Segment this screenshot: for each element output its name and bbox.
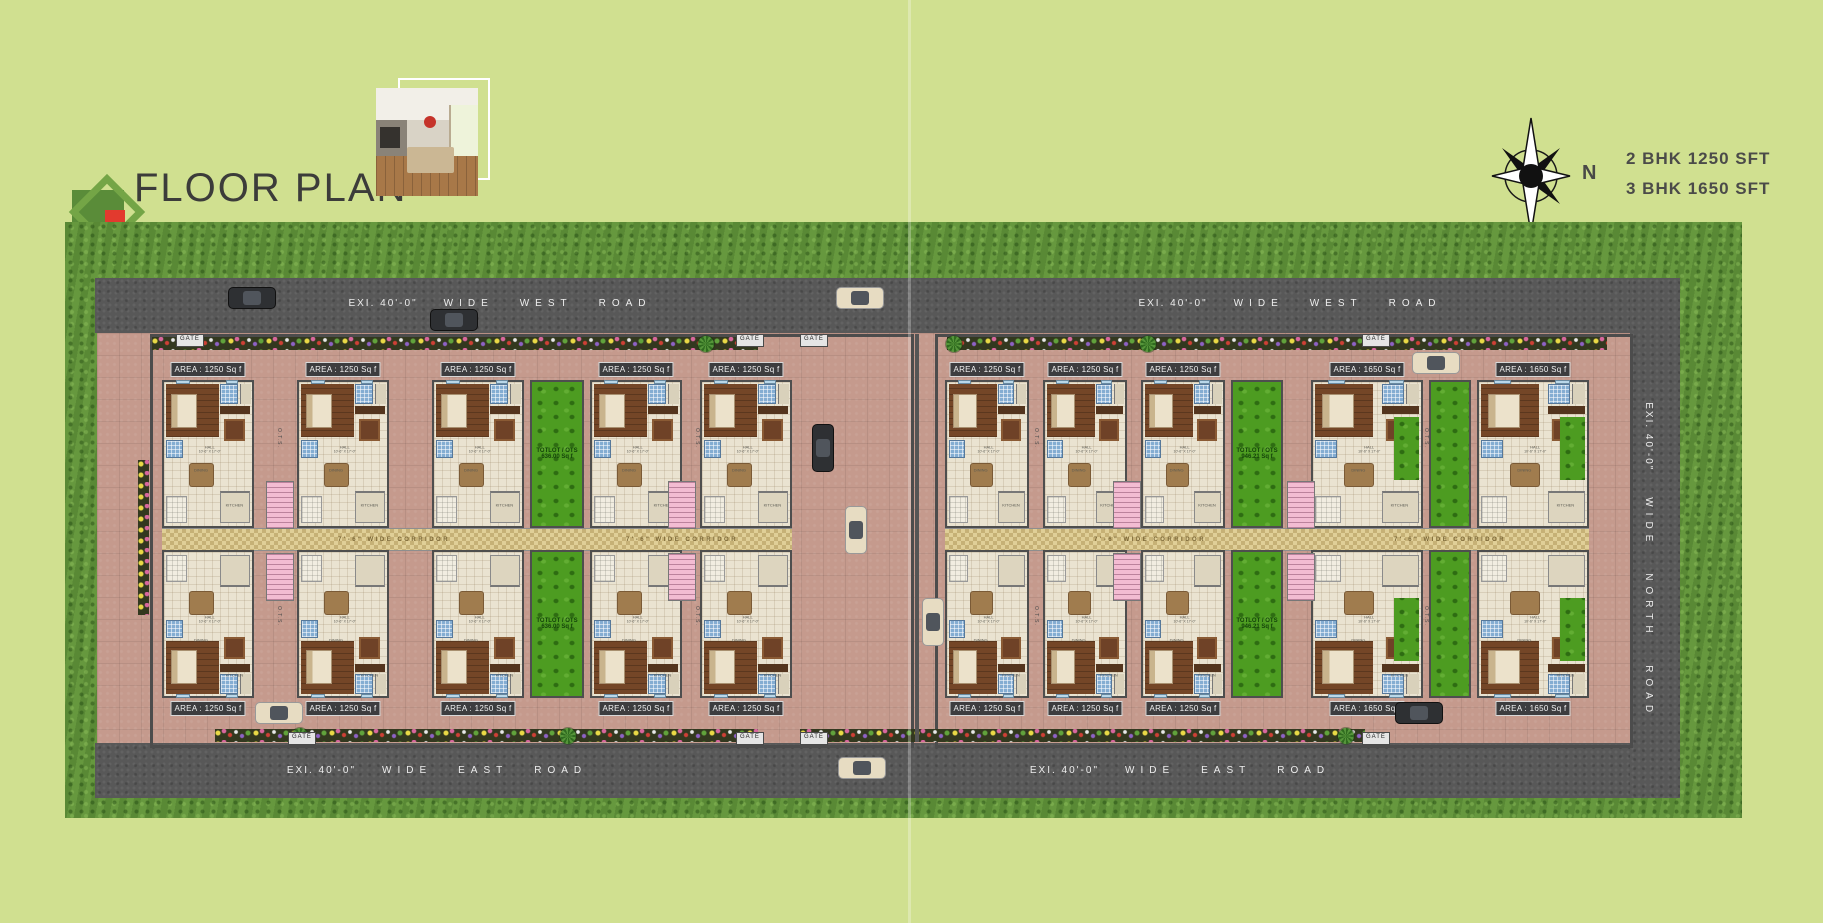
room-label: HALL10'-6" X 17'-0" <box>199 445 221 454</box>
road-label-segment: NORTH <box>1643 573 1654 638</box>
room-label-text: 10'-6" X 17'-0" <box>1076 620 1098 624</box>
room-label: HALL10'-6" X 17'-0" <box>1358 615 1380 624</box>
room-label-text: HALL <box>633 614 643 619</box>
unit-cell-bhk2: HALL10'-6" X 17'-0"DININGKITCHEN <box>700 380 792 528</box>
window <box>1389 694 1404 698</box>
totlot-patch: TOTLOT / OTS946.21 Sq f <box>1231 380 1283 528</box>
floor-plan-page: { "page": {"background": "#d0e090"}, "he… <box>0 0 1823 923</box>
sofa <box>359 419 380 441</box>
sofa <box>224 637 245 659</box>
window <box>958 694 971 698</box>
sitout-area <box>1481 496 1507 523</box>
staircase <box>668 481 696 529</box>
window <box>1328 380 1345 384</box>
wardrobe <box>220 406 250 413</box>
bed <box>709 394 735 429</box>
totlot-patch <box>1429 550 1471 698</box>
bed <box>1488 650 1520 685</box>
totlot-label-line: 946.21 Sq f <box>1241 454 1272 460</box>
unit-cell-bhk2: HALL10'-6" X 17'-0"DININGKITCHEN <box>1141 550 1225 698</box>
room-label-text: HALL <box>743 614 753 619</box>
car-cream <box>836 287 884 309</box>
room-label: HALL10'-6" X 17'-0" <box>1076 615 1098 624</box>
room-label-text: HALL <box>1364 614 1374 619</box>
sitout-area <box>704 496 725 523</box>
bed <box>1322 394 1354 429</box>
staircase <box>1113 481 1141 529</box>
area-badge: AREA : 1250 Sq f <box>949 701 1024 716</box>
window <box>446 380 460 384</box>
road-label-segment: ROAD <box>1277 765 1330 776</box>
room-label-text: 10'-6" X 17'-0" <box>469 620 491 624</box>
sitout-area <box>594 555 615 582</box>
totlot-label-line: 946.21 Sq f <box>1241 624 1272 630</box>
area-badge: AREA : 1250 Sq f <box>1047 362 1122 377</box>
bed <box>599 394 625 429</box>
room-label: KITCHEN <box>496 673 514 678</box>
toilet-area <box>166 440 184 457</box>
sitout-area <box>1047 496 1066 523</box>
photo-tv <box>380 127 400 149</box>
toilet-area <box>301 440 319 457</box>
toilet-area <box>1481 620 1503 637</box>
room-label-text: 10'-6" X 17'-0" <box>1358 620 1380 624</box>
palm-tree-icon <box>1338 728 1354 744</box>
wardrobe <box>1382 406 1419 413</box>
room-label: DINING <box>464 469 478 474</box>
kitchen-area <box>355 555 385 587</box>
photo-lamp <box>424 116 436 128</box>
toilet-area <box>998 384 1014 404</box>
room-label: DINING <box>974 639 988 644</box>
room-label-text: 10'-6" X 17'-0" <box>627 620 649 624</box>
sofa <box>1099 419 1118 441</box>
room-label-text: HALL <box>205 614 215 619</box>
sitout-area <box>301 496 322 523</box>
dress-area <box>375 384 386 404</box>
toilet-area <box>1145 620 1161 637</box>
sitout-area <box>1145 555 1164 582</box>
toilet-area <box>758 384 776 404</box>
area-badge: AREA : 1250 Sq f <box>440 701 515 716</box>
gate-badge: GATE <box>176 334 204 347</box>
area-badge: AREA : 1250 Sq f <box>1145 362 1220 377</box>
toilet-area <box>1145 440 1161 457</box>
unit-cell-bhk2: HALL10'-6" X 17'-0"DININGKITCHEN <box>162 380 254 528</box>
unit-cell-bhk3: HALL10'-6" X 17'-0"DININGKITCHEN <box>1311 380 1423 528</box>
gate-badge: GATE <box>736 334 764 347</box>
wardrobe <box>1382 664 1419 671</box>
room-label-text: HALL <box>984 614 994 619</box>
interior-photo <box>376 88 478 196</box>
toilet-area <box>1481 440 1503 457</box>
window <box>496 694 508 698</box>
room-label: HALL10'-6" X 17'-0" <box>1174 445 1196 454</box>
window <box>1056 694 1069 698</box>
window <box>176 694 190 698</box>
window <box>226 380 238 384</box>
sofa <box>1001 419 1020 441</box>
room-label-text: HALL <box>743 444 753 449</box>
sofa <box>652 637 673 659</box>
window <box>311 694 325 698</box>
window <box>311 380 325 384</box>
sofa <box>494 419 515 441</box>
window <box>714 694 728 698</box>
room-label: KITCHEN <box>654 673 672 678</box>
unit-cell-bhk2: HALL10'-6" X 17'-0"DININGKITCHEN <box>162 550 254 698</box>
area-badge: AREA : 1250 Sq f <box>170 701 245 716</box>
road-label-segment: WIDE <box>1125 765 1175 776</box>
room-label: KITCHEN <box>1198 503 1216 508</box>
road-label-segment: WIDE <box>382 765 432 776</box>
room-label: DINING <box>194 639 208 644</box>
room-label-text: HALL <box>1082 614 1092 619</box>
dining-table <box>1069 592 1090 614</box>
toilet-area <box>355 384 373 404</box>
private-garden <box>1560 598 1585 661</box>
unit-cell-bhk2: HALL10'-6" X 17'-0"DININGKITCHEN <box>945 550 1029 698</box>
bed <box>306 650 332 685</box>
area-badge: AREA : 1650 Sq f <box>1329 362 1404 377</box>
toilet-area <box>1047 620 1063 637</box>
window <box>1056 380 1069 384</box>
ots-label: O.T.S. <box>276 606 282 626</box>
room-label: DINING <box>1351 469 1365 474</box>
flower-bed <box>947 337 1607 350</box>
sitout-area <box>166 496 187 523</box>
ots-label: O.T.S. <box>1033 428 1039 448</box>
palm-tree-icon <box>698 336 714 352</box>
road-label-segment: WIDE <box>1234 298 1284 309</box>
road-label-segment: ROAD <box>534 765 587 776</box>
road-label-segment: ROAD <box>1389 298 1442 309</box>
room-label: HALL10'-6" X 17'-0" <box>469 445 491 454</box>
road-label-segment: EXI. 40'-0" <box>1138 298 1207 309</box>
totlot-label-line: 636.00 Sq f <box>541 454 572 460</box>
car-cabin <box>1427 356 1445 370</box>
ots-label: O.T.S. <box>1423 606 1429 626</box>
gate-badge: GATE <box>288 732 316 745</box>
kitchen-area <box>998 555 1025 587</box>
kitchen-area <box>490 555 520 587</box>
room-label-text: 10'-6" X 17'-0" <box>1358 450 1380 454</box>
room-label: DINING <box>1072 469 1086 474</box>
area-badge: AREA : 1250 Sq f <box>949 362 1024 377</box>
wardrobe <box>220 664 250 671</box>
toilet-area <box>594 620 612 637</box>
road-north <box>1630 278 1680 798</box>
toilet-area <box>1315 440 1337 457</box>
window <box>1389 380 1404 384</box>
room-label: KITCHEN <box>764 673 782 678</box>
dress-area <box>1114 384 1124 404</box>
area-badge: AREA : 1650 Sq f <box>1495 362 1570 377</box>
window <box>958 380 971 384</box>
page-fold-line <box>908 0 911 923</box>
toilet-area <box>1548 384 1570 404</box>
road-label-segment: EXI. 40'-0" <box>348 298 417 309</box>
road-label-west_top: EXI. 40'-0"WIDEWESTROAD <box>1138 298 1441 309</box>
sitout-area <box>594 496 615 523</box>
room-label: DINING <box>329 639 343 644</box>
toilet-area <box>949 440 965 457</box>
compass-rose-icon <box>1488 116 1574 236</box>
totlot-label: TOTLOT / OTS946.21 Sq f <box>1233 552 1281 696</box>
room-label-text: HALL <box>340 444 350 449</box>
road-label-segment: EAST <box>1201 765 1251 776</box>
sofa <box>762 419 783 441</box>
staircase <box>266 481 294 529</box>
sofa <box>494 637 515 659</box>
totlot-patch <box>1429 380 1471 528</box>
corridor: 7'-6" WIDE CORRIDOR7'-6" WIDE CORRIDOR <box>162 528 792 551</box>
room-label-text: HALL <box>340 614 350 619</box>
sitout-area <box>166 555 187 582</box>
room-label: HALL10'-6" X 17'-0" <box>334 615 356 624</box>
flower-bed <box>138 460 149 615</box>
dress-area <box>778 384 789 404</box>
room-label-text: HALL <box>1530 614 1540 619</box>
room-label-text: 10'-6" X 17'-0" <box>737 450 759 454</box>
room-label: KITCHEN <box>496 503 514 508</box>
palm-tree-icon <box>560 728 576 744</box>
area-badge: AREA : 1250 Sq f <box>305 362 380 377</box>
area-badge: AREA : 1250 Sq f <box>170 362 245 377</box>
car-cream <box>1412 352 1460 374</box>
sitout-area <box>1047 555 1066 582</box>
sofa <box>652 419 673 441</box>
window <box>496 380 508 384</box>
wardrobe <box>998 664 1025 671</box>
wardrobe <box>1194 406 1221 413</box>
bed <box>1149 394 1173 429</box>
toilet-area <box>704 440 722 457</box>
toilet-area <box>949 620 965 637</box>
totlot-label-line: 636.00 Sq f <box>541 624 572 630</box>
bed <box>441 650 467 685</box>
toilet-area <box>1047 440 1063 457</box>
toilet-area <box>490 384 508 404</box>
room-label-text: 10'-6" X 17'-0" <box>1524 450 1546 454</box>
bed <box>171 394 197 429</box>
sofa <box>1001 637 1020 659</box>
room-label: HALL10'-6" X 17'-0" <box>1358 445 1380 454</box>
room-label: DINING <box>329 469 343 474</box>
ots-label: O.T.S. <box>694 606 700 626</box>
room-label-text: HALL <box>984 444 994 449</box>
room-label: KITCHEN <box>1391 673 1409 678</box>
window <box>361 380 373 384</box>
toilet-area <box>220 384 238 404</box>
area-badge: AREA : 1250 Sq f <box>440 362 515 377</box>
sitout-area <box>949 496 968 523</box>
dress-area <box>1212 384 1222 404</box>
room-label: DINING <box>732 639 746 644</box>
corridor: 7'-6" WIDE CORRIDOR7'-6" WIDE CORRIDOR <box>945 528 1589 551</box>
toilet-area <box>1315 620 1337 637</box>
toilet-area <box>594 440 612 457</box>
kitchen-area <box>1382 555 1419 587</box>
room-label: KITCHEN <box>361 673 379 678</box>
road-label-segment: WIDE <box>444 298 494 309</box>
room-label-text: 10'-6" X 17'-0" <box>1524 620 1546 624</box>
area-badge: AREA : 1650 Sq f <box>1329 701 1404 716</box>
unit-cell-bhk2: HALL10'-6" X 17'-0"DININGKITCHEN <box>432 380 524 528</box>
legend-3bhk: 3 BHK 1650 SFT <box>1626 179 1770 199</box>
window <box>714 380 728 384</box>
room-label-text: HALL <box>205 444 215 449</box>
bed <box>953 394 977 429</box>
area-badge: AREA : 1250 Sq f <box>1145 701 1220 716</box>
road-label-segment: WEST <box>1310 298 1363 309</box>
room-label: DINING <box>1517 469 1531 474</box>
bed <box>1149 650 1173 685</box>
sofa <box>762 637 783 659</box>
car-cream <box>845 506 867 554</box>
wardrobe <box>1194 664 1221 671</box>
toilet-area <box>301 620 319 637</box>
toilet-area <box>436 440 454 457</box>
dress-area <box>510 384 521 404</box>
room-label: HALL10'-6" X 17'-0" <box>1174 615 1196 624</box>
room-label: KITCHEN <box>764 503 782 508</box>
room-label: KITCHEN <box>1557 503 1575 508</box>
room-label: HALL10'-6" X 17'-0" <box>469 615 491 624</box>
dining-table <box>190 592 213 614</box>
road-label-segment: ROAD <box>599 298 652 309</box>
room-label-text: 10'-6" X 17'-0" <box>737 620 759 624</box>
room-label-text: HALL <box>1082 444 1092 449</box>
corridor-label: 7'-6" WIDE CORRIDOR <box>626 537 738 543</box>
palm-tree-icon <box>946 336 962 352</box>
compound-divider-wall <box>915 334 919 742</box>
road-label-east_bottom: EXI. 40'-0"WIDEEASTROAD <box>1030 765 1330 776</box>
room-label: HALL10'-6" X 17'-0" <box>978 445 1000 454</box>
dining-table <box>728 592 751 614</box>
totlot-patch: TOTLOT / OTS636.00 Sq f <box>530 380 584 528</box>
corridor-label: 7'-6" WIDE CORRIDOR <box>1094 537 1206 543</box>
flower-bed <box>152 337 758 350</box>
unit-cell-bhk2: HALL10'-6" X 17'-0"DININGKITCHEN <box>945 380 1029 528</box>
window <box>604 380 618 384</box>
room-label: KITCHEN <box>1002 673 1020 678</box>
toilet-area <box>1194 384 1210 404</box>
toilet-area <box>704 620 722 637</box>
sofa <box>224 419 245 441</box>
legend-2bhk: 2 BHK 1250 SFT <box>1626 149 1770 169</box>
area-badge: AREA : 1250 Sq f <box>1047 701 1122 716</box>
car-cabin <box>926 613 940 631</box>
room-label: KITCHEN <box>1557 673 1575 678</box>
room-label-text: HALL <box>475 614 485 619</box>
room-label: HALL10'-6" X 17'-0" <box>1076 445 1098 454</box>
wardrobe <box>648 406 678 413</box>
car-cabin <box>849 521 863 539</box>
area-badge: AREA : 1250 Sq f <box>708 362 783 377</box>
gate-badge: GATE <box>1362 334 1390 347</box>
car-cabin <box>445 313 463 327</box>
room-label-text: 10'-6" X 17'-0" <box>978 620 1000 624</box>
wardrobe <box>758 664 788 671</box>
sitout-area <box>1481 555 1507 582</box>
road-label-segment: WIDE <box>1643 497 1654 547</box>
wardrobe <box>1548 406 1585 413</box>
wardrobe <box>490 406 520 413</box>
wardrobe <box>355 664 385 671</box>
room-label: HALL10'-6" X 17'-0" <box>737 615 759 624</box>
room-label-text: 10'-6" X 17'-0" <box>1174 620 1196 624</box>
totlot-label: TOTLOT / OTS636.00 Sq f <box>532 382 582 526</box>
kitchen-area <box>1194 555 1221 587</box>
gate-badge: GATE <box>1362 732 1390 745</box>
car-cabin <box>1410 706 1428 720</box>
road-label-segment: EXI. 40'-0" <box>1030 765 1099 776</box>
window <box>1494 694 1511 698</box>
dining-table <box>1511 592 1539 614</box>
bed <box>1051 650 1075 685</box>
window <box>1199 380 1210 384</box>
road-label-segment: ROAD <box>1643 665 1654 718</box>
toilet-area <box>436 620 454 637</box>
room-label: DINING <box>1170 469 1184 474</box>
sofa <box>1197 637 1216 659</box>
room-label-text: 10'-6" X 17'-0" <box>199 450 221 454</box>
dress-area <box>240 384 251 404</box>
wardrobe <box>648 664 678 671</box>
car-dark <box>430 309 478 331</box>
wardrobe <box>1096 664 1123 671</box>
room-label: KITCHEN <box>1391 503 1409 508</box>
car-cabin <box>851 291 869 305</box>
car-cabin <box>816 439 830 457</box>
room-label: DINING <box>1517 639 1531 644</box>
room-label-text: 10'-6" X 17'-0" <box>334 620 356 624</box>
car-dark <box>812 424 834 472</box>
car-dark <box>1395 702 1443 724</box>
window <box>361 694 373 698</box>
road-label-north_right: EXI. 40'-0"WIDENORTHROAD <box>1643 402 1654 718</box>
car-cabin <box>853 761 871 775</box>
window <box>226 694 238 698</box>
wardrobe <box>355 406 385 413</box>
room-label-text: 10'-6" X 17'-0" <box>334 450 356 454</box>
sitout-area <box>1315 496 1341 523</box>
room-label: HALL10'-6" X 17'-0" <box>978 615 1000 624</box>
unit-cell-bhk2: HALL10'-6" X 17'-0"DININGKITCHEN <box>432 550 524 698</box>
window <box>1154 380 1167 384</box>
bed <box>599 650 625 685</box>
dress-area <box>1572 384 1586 404</box>
bed <box>306 394 332 429</box>
car-dark <box>228 287 276 309</box>
window <box>1101 694 1112 698</box>
window <box>1199 694 1210 698</box>
window <box>1555 380 1570 384</box>
private-garden <box>1394 598 1419 661</box>
wardrobe <box>998 406 1025 413</box>
room-label-text: 10'-6" X 17'-0" <box>978 450 1000 454</box>
photo-sofa <box>407 147 454 173</box>
room-label: DINING <box>1170 639 1184 644</box>
room-label: HALL10'-6" X 17'-0" <box>334 445 356 454</box>
ots-label: O.T.S. <box>276 428 282 448</box>
corridor-label: 7'-6" WIDE CORRIDOR <box>1394 537 1506 543</box>
wardrobe <box>1096 406 1123 413</box>
window <box>446 694 460 698</box>
gate-badge: GATE <box>800 732 828 745</box>
kitchen-area <box>220 555 250 587</box>
